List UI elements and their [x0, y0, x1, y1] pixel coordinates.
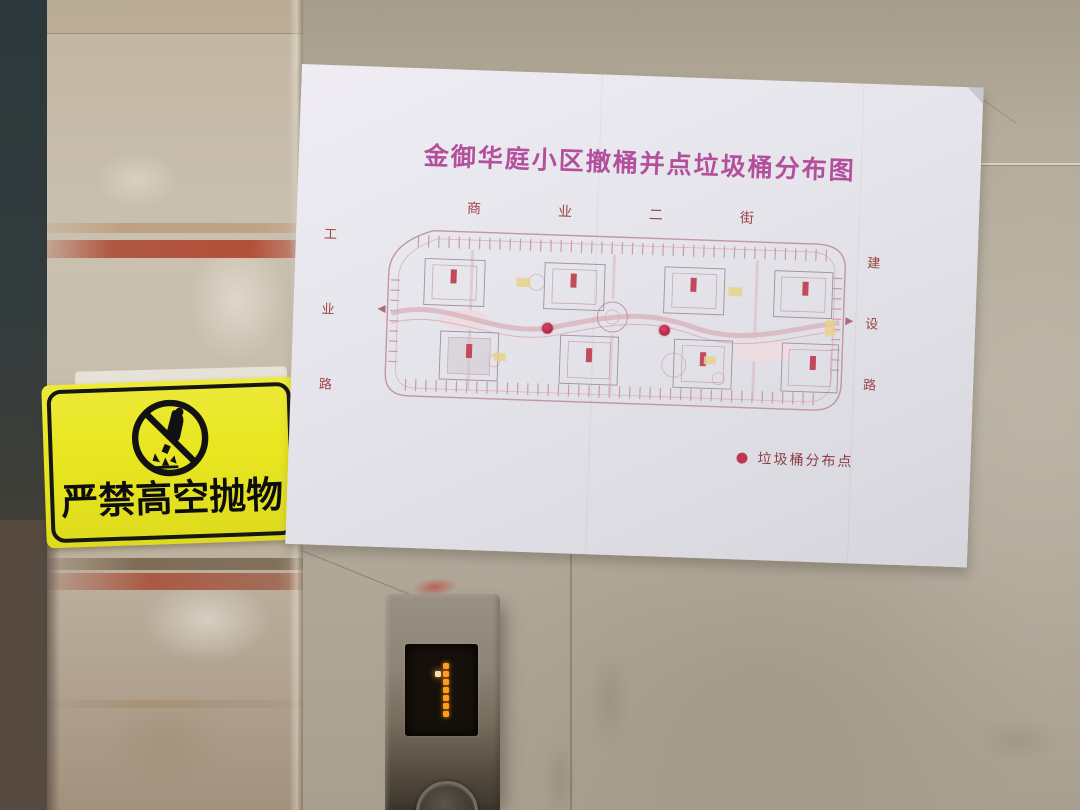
road-label-right: 建设路	[857, 256, 882, 440]
wall-tile-seam-horizontal	[978, 163, 1080, 166]
legend-dot-icon	[736, 452, 747, 463]
tape-mark-faint-bottom	[47, 700, 303, 708]
map-legend: 垃圾桶分布点	[736, 447, 854, 471]
warning-sign: 严禁高空抛物	[41, 377, 301, 549]
warning-sign-border: 严禁高空抛物	[46, 382, 295, 543]
poster-corner-fold	[967, 87, 984, 104]
site-plan-drawing	[372, 217, 858, 426]
warning-sign-text: 严禁高空抛物	[61, 476, 284, 521]
wall-tile-seam-vertical	[570, 544, 572, 810]
photo-scene: 严禁高空抛物 金御华庭小区撤桶并点垃圾桶分布图 商业二街 工业路 建设路	[0, 0, 1080, 810]
poster-title: 金御华庭小区撤桶并点垃圾桶分布图	[298, 132, 981, 192]
red-tape-stripe-upper	[47, 240, 303, 258]
poster: 金御华庭小区撤桶并点垃圾桶分布图 商业二街 工业路 建设路	[285, 64, 983, 568]
elevator-panel	[385, 594, 500, 810]
red-tape-stripe-lower	[47, 573, 303, 590]
elevator-call-button[interactable]	[416, 781, 478, 810]
road-label-left: 工业路	[312, 227, 339, 453]
left-dark-edge-bottom	[0, 520, 60, 810]
tape-mark-faint-upper	[47, 223, 303, 233]
brown-stripe-lower	[47, 558, 303, 570]
no-throwing-objects-icon	[123, 390, 218, 485]
floor-indicator-display	[405, 644, 478, 736]
pillar-top-band	[47, 0, 303, 34]
site-plan-map	[372, 217, 858, 426]
legend-label: 垃圾桶分布点	[757, 448, 854, 471]
